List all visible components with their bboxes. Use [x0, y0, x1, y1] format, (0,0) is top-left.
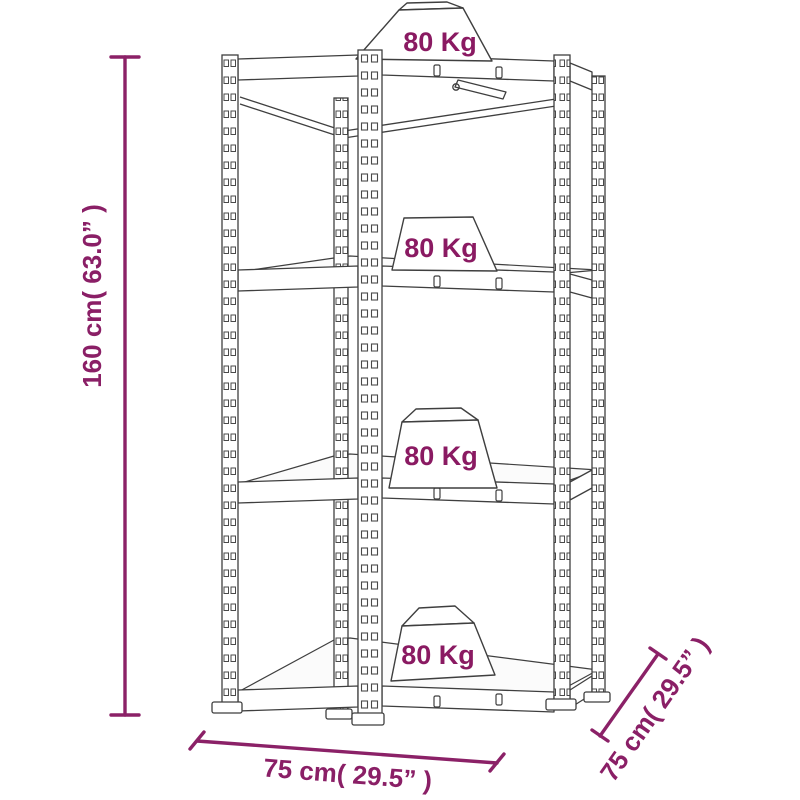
post-back-corner [334, 98, 348, 712]
product-dimension-diagram: 80 Kg 80 Kg 80 Kg 80 Kg [0, 0, 800, 800]
load-marker-2: 80 Kg [392, 217, 497, 271]
post-front-left [222, 55, 238, 704]
dimension-height: 160 cm( 63.0” ) [77, 57, 139, 715]
top-back-rails [240, 80, 556, 138]
corner-bracket [455, 80, 506, 99]
depth-label: 75 cm( 29.5” ) [594, 631, 716, 787]
load-marker-3: 80 Kg [389, 408, 497, 488]
load-marker-4: 80 Kg [391, 606, 495, 681]
post-back-right [592, 76, 605, 694]
width-label: 75 cm( 29.5” ) [262, 752, 433, 795]
corner-shelf-diagram-svg: 80 Kg 80 Kg 80 Kg 80 Kg [0, 0, 800, 800]
dimension-width: 75 cm( 29.5” ) [190, 732, 504, 796]
load-label-2: 80 Kg [404, 233, 478, 263]
post-front-right [554, 55, 570, 700]
load-label-1: 80 Kg [403, 27, 477, 57]
load-label-3: 80 Kg [404, 441, 478, 471]
height-label: 160 cm( 63.0” ) [77, 204, 107, 388]
load-label-4: 80 Kg [401, 640, 475, 670]
post-front-corner [358, 50, 382, 714]
dimension-depth: 75 cm( 29.5” ) [592, 631, 715, 787]
shelf-structure: 80 Kg 80 Kg 80 Kg 80 Kg [212, 2, 610, 725]
